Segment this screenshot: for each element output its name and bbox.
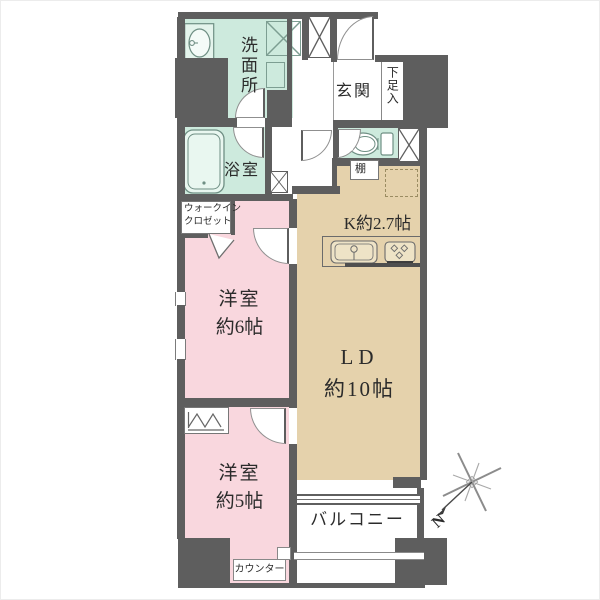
wall-ld-west-1 [289, 199, 297, 228]
compass-rose-icon: N [430, 446, 514, 530]
floor-plan: 洗面所 玄関 下足入 浴室 棚 K約2.7帖 ウォークイン クロゼット 洋室 約… [0, 0, 600, 600]
wall-bedroom-divider [177, 398, 293, 407]
wic-label-line2: クロゼット [184, 216, 241, 229]
wall-right-main [420, 125, 427, 480]
wall-shaft1-right [331, 16, 337, 62]
living-dining-label: LD 約10帖 [307, 342, 412, 405]
compass-north-label: N [429, 511, 449, 532]
bedroom6-label: 洋室 約6帖 [197, 286, 282, 341]
pipe-shaft-x-icon-mid [270, 171, 288, 193]
wall-left-4 [177, 359, 185, 539]
wall-wic-top [177, 194, 293, 201]
wall-block-top-right [401, 55, 448, 128]
kitchen-label: K約2.7帖 [330, 213, 425, 236]
wall-step-right [393, 477, 421, 488]
walk-in-closet-label: ウォークイン クロゼット [184, 203, 241, 229]
balcony-sliding-window [297, 494, 420, 505]
wall-block-bottom-left [178, 538, 230, 585]
shoe-box-label: 下足入 [384, 66, 400, 105]
hall-ld-door [301, 130, 332, 161]
bathtub-icon [183, 129, 225, 194]
wall-stub-washroom [267, 90, 287, 118]
closet-hanger-icon [187, 411, 226, 432]
bedroom5-closet-box [184, 407, 229, 434]
wall-bottom [178, 583, 425, 588]
balcony-label: バルコニー [300, 509, 415, 532]
shelf-label: 棚 [355, 162, 366, 177]
walk-in-closet-door [206, 233, 236, 261]
washing-machine-pan-icon [266, 21, 301, 56]
counter-label: カウンター [233, 563, 286, 577]
bathroom-label: 浴室 [224, 160, 260, 182]
washroom-label: 洗面所 [235, 36, 258, 96]
wall-entrance-bottom [333, 120, 425, 128]
wall-washroom-bottom-right [265, 118, 292, 127]
entrance-step-line [333, 62, 334, 120]
wall-hall-bottom [292, 186, 340, 194]
entrance-door [337, 16, 374, 60]
entrance-label: 玄関 [336, 81, 372, 103]
window-bedroom6-upper [175, 292, 186, 306]
wall-ld-west-2 [289, 264, 297, 408]
wall-top [178, 12, 378, 19]
bedroom5-label: 洋室 約5帖 [197, 460, 282, 515]
counter-step-box [277, 547, 291, 560]
washroom-cabinet [266, 62, 285, 88]
balcony-railing [294, 552, 424, 560]
pipe-shaft-x-icon-right [398, 128, 420, 162]
wall-washroom-bottom-left [177, 118, 237, 127]
wall-left-3 [177, 305, 185, 340]
wall-ld-west-3 [289, 444, 297, 585]
wall-block-top-left [175, 58, 228, 118]
wic-label-line1: ウォークイン [184, 203, 241, 216]
wall-hall-left [287, 16, 292, 118]
refrigerator-space-dashed [385, 169, 418, 197]
counter-front-edge [345, 263, 421, 267]
wall-left-1 [177, 17, 185, 60]
pipe-shaft-x-icon-top [308, 16, 331, 58]
window-bedroom6-lower [175, 339, 186, 360]
wall-entrance-top [375, 55, 403, 62]
